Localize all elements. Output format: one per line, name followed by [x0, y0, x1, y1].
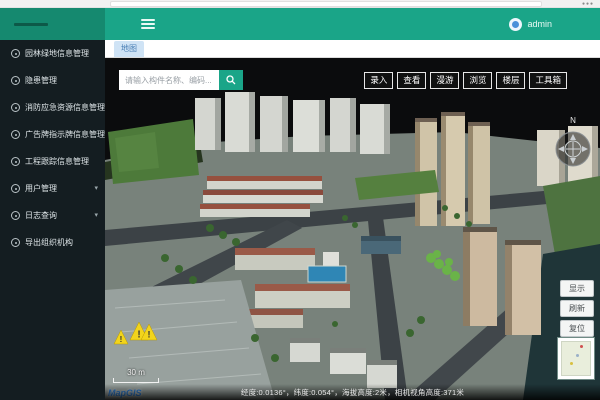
search-button[interactable]: [219, 70, 243, 90]
app-window: ●●● admin 园林绿地信息管理 隐患管理 消防应急资源信息管理: [0, 0, 600, 400]
warning-icon: !: [114, 330, 128, 344]
tab-bar: 地图: [105, 40, 600, 58]
tool-browse-button[interactable]: 浏览: [463, 72, 492, 89]
address-bar[interactable]: [110, 1, 542, 7]
chevron-down-icon: ▾: [94, 185, 98, 192]
browser-menu-icon[interactable]: ●●●: [582, 1, 594, 7]
map-toolbar: 录入 查看 漫游 浏览 楼层 工具箱: [364, 72, 567, 89]
scale-bar: 30 m: [113, 368, 159, 383]
svg-text:!: !: [120, 335, 123, 344]
menu-bullet-icon: [11, 157, 20, 166]
menu-bullet-icon: [11, 76, 20, 85]
sidebar-item-fire-resources[interactable]: 消防应急资源信息管理: [0, 94, 105, 121]
tool-floor-button[interactable]: 楼层: [496, 72, 525, 89]
app-logo-block: [0, 8, 105, 40]
main-content: 地图: [105, 40, 600, 400]
username-label: admin: [527, 19, 552, 29]
sidebar-item-log-query[interactable]: 日志查询 ▾: [0, 202, 105, 229]
minimap-marker: [580, 345, 583, 348]
sidebar-item-project-tracking[interactable]: 工程跟踪信息管理: [0, 148, 105, 175]
search-input[interactable]: [119, 70, 219, 90]
compass-navigation-widget[interactable]: N: [553, 114, 593, 172]
sidebar-item-billboard-info[interactable]: 广告牌指示牌信息管理: [0, 121, 105, 148]
user-avatar-icon: [509, 18, 522, 31]
tool-roam-button[interactable]: 漫游: [430, 72, 459, 89]
camera-status-text: 经度:0.0136°，纬度:0.054°，海拔高度:2米，相机视角高度:371米: [241, 387, 464, 400]
menu-bullet-icon: [11, 103, 20, 112]
tab-map[interactable]: 地图: [114, 41, 144, 57]
app-header: admin: [0, 8, 600, 40]
minimap-marker: [570, 362, 573, 365]
menu-bullet-icon: [11, 211, 20, 220]
minimap-marker: [576, 354, 579, 357]
compass-north-label: N: [570, 116, 576, 125]
sidebar-item-garden-info[interactable]: 园林绿地信息管理: [0, 40, 105, 67]
user-box[interactable]: admin: [509, 8, 552, 40]
sidebar: 园林绿地信息管理 隐患管理 消防应急资源信息管理 广告牌指示牌信息管理 工程跟踪…: [0, 40, 105, 400]
sidebar-item-hazard-mgmt[interactable]: 隐患管理: [0, 67, 105, 94]
display-button[interactable]: 显示: [560, 280, 594, 297]
app-logo: [14, 23, 48, 26]
map-3d-scene[interactable]: [105, 58, 600, 400]
svg-text:!: !: [148, 330, 151, 340]
map-side-buttons: 显示 刷新 复位: [560, 280, 594, 337]
status-bar: 经度:0.0136°，纬度:0.054°，海拔高度:2米，相机视角高度:371米: [105, 384, 600, 400]
tool-view-button[interactable]: 查看: [397, 72, 426, 89]
menu-bullet-icon: [11, 49, 20, 58]
tool-entry-button[interactable]: 录入: [364, 72, 393, 89]
hamburger-menu-icon[interactable]: [141, 17, 155, 31]
component-search: [119, 70, 243, 90]
refresh-button[interactable]: 刷新: [560, 300, 594, 317]
svg-text:!: !: [137, 330, 140, 341]
tool-toolbox-button[interactable]: 工具箱: [529, 72, 567, 89]
chevron-down-icon: ▾: [94, 212, 98, 219]
sidebar-item-user-mgmt[interactable]: 用户管理 ▾: [0, 175, 105, 202]
menu-bullet-icon: [11, 184, 20, 193]
browser-chrome: ●●●: [0, 0, 600, 8]
sidebar-item-export-org[interactable]: 导出组织机构: [0, 229, 105, 256]
map-viewport[interactable]: 录入 查看 漫游 浏览 楼层 工具箱 N: [105, 58, 600, 400]
reset-button[interactable]: 复位: [560, 320, 594, 337]
warning-markers[interactable]: ! ! !: [111, 320, 161, 348]
menu-bullet-icon: [11, 238, 20, 247]
menu-bullet-icon: [11, 130, 20, 139]
overview-minimap[interactable]: [557, 337, 595, 380]
search-icon: [226, 75, 236, 85]
